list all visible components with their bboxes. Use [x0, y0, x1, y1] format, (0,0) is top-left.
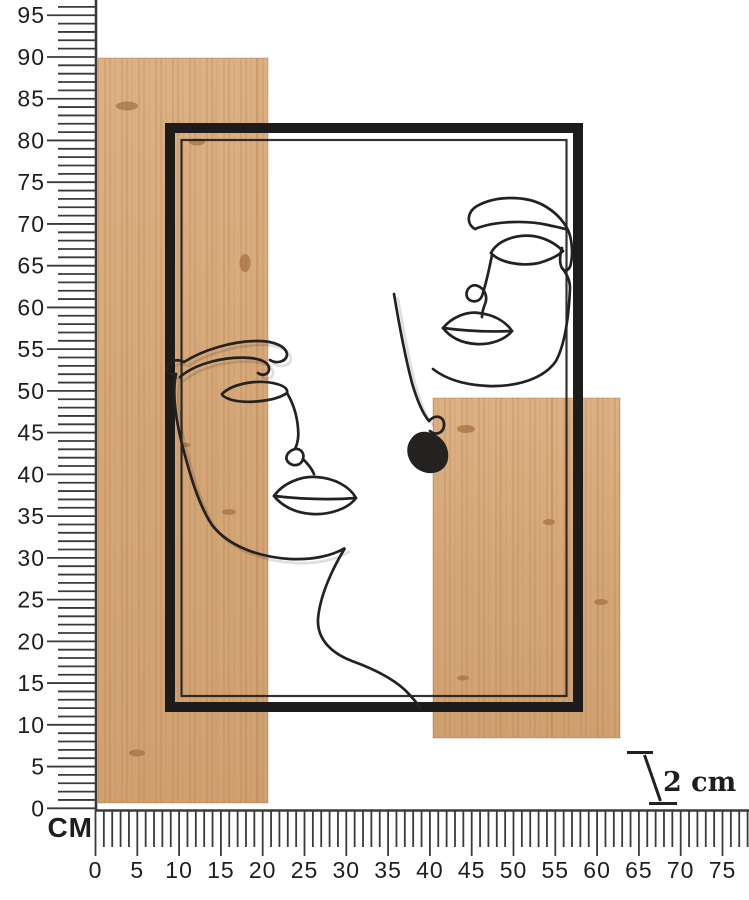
ruler-label: 65: [17, 253, 45, 279]
eye-lower-lid: [491, 251, 563, 264]
depth-label: 2 cm: [663, 767, 736, 798]
product: [98, 58, 620, 803]
lips-seam: [274, 496, 356, 499]
ruler-label: 30: [333, 857, 361, 883]
wood-knot: [543, 519, 555, 525]
wood-knot: [222, 509, 236, 515]
ruler-label: 90: [17, 44, 45, 70]
ruler-label: 95: [17, 2, 45, 28]
lips-outline: [274, 477, 356, 514]
ruler-unit-label: CM: [47, 812, 93, 843]
lips-seam: [443, 328, 512, 331]
ruler-label: 85: [17, 86, 45, 112]
ruler-label: 35: [374, 857, 402, 883]
ruler-label: 50: [17, 378, 45, 404]
ruler-label: 25: [17, 587, 45, 613]
depth-indicator: 2 cm: [627, 753, 736, 804]
ruler-label: 60: [17, 294, 45, 320]
ruler-label: 10: [17, 712, 45, 738]
jaw-line: [433, 268, 570, 386]
ruler-label: 25: [291, 857, 319, 883]
product-dimension-diagram: 05101520253035404550556065707580859095 0…: [0, 0, 749, 900]
ruler-label: 40: [416, 857, 444, 883]
ruler-label: 50: [500, 857, 528, 883]
vertical-ruler-cm: 05101520253035404550556065707580859095: [17, 0, 96, 821]
ruler-label: 60: [583, 857, 611, 883]
ruler-label: 10: [165, 857, 193, 883]
nose-with-nostril-loop: [286, 393, 314, 474]
shadow: [398, 298, 433, 425]
ruler-label: 70: [667, 857, 695, 883]
wood-knot: [240, 254, 251, 272]
wood-knot: [457, 676, 469, 681]
ruler-label: 75: [17, 169, 45, 195]
ruler-label: 15: [207, 857, 235, 883]
nose-with-nostril-loop: [467, 255, 492, 317]
wood-knot: [594, 599, 608, 605]
ruler-label: 75: [709, 857, 737, 883]
ruler-label: 70: [17, 211, 45, 237]
ruler-label: 20: [249, 857, 277, 883]
ruler-label: 0: [31, 795, 45, 821]
ruler-label: 80: [17, 127, 45, 153]
ruler-label: 0: [89, 857, 103, 883]
wood-grain-texture: [433, 398, 620, 738]
brow-top-with-tail-loop: [469, 198, 572, 270]
eye-upper-lid: [491, 236, 563, 253]
ruler-label: 5: [31, 754, 45, 780]
wood-knot: [116, 102, 138, 111]
horizontal-ruler-cm: 051015202530354045505560657075: [89, 811, 749, 884]
brow-lower-edge: [475, 222, 568, 230]
wood-panel-right: [433, 398, 620, 738]
depth-slant-line: [645, 755, 661, 801]
ruler-label: 40: [17, 461, 45, 487]
ruler-label: 20: [17, 628, 45, 654]
scene: 05101520253035404550556065707580859095 0…: [0, 0, 749, 900]
ruler-label: 65: [625, 857, 653, 883]
ruler-label: 55: [542, 857, 570, 883]
ruler-label: 30: [17, 545, 45, 571]
wood-knot: [457, 425, 475, 433]
ruler-label: 45: [17, 420, 45, 446]
ruler-label: 55: [17, 336, 45, 362]
ruler-label: 5: [130, 857, 144, 883]
wood-knot: [129, 750, 145, 757]
ruler-label: 35: [17, 503, 45, 529]
ruler-label: 45: [458, 857, 486, 883]
ruler-label: 15: [17, 670, 45, 696]
